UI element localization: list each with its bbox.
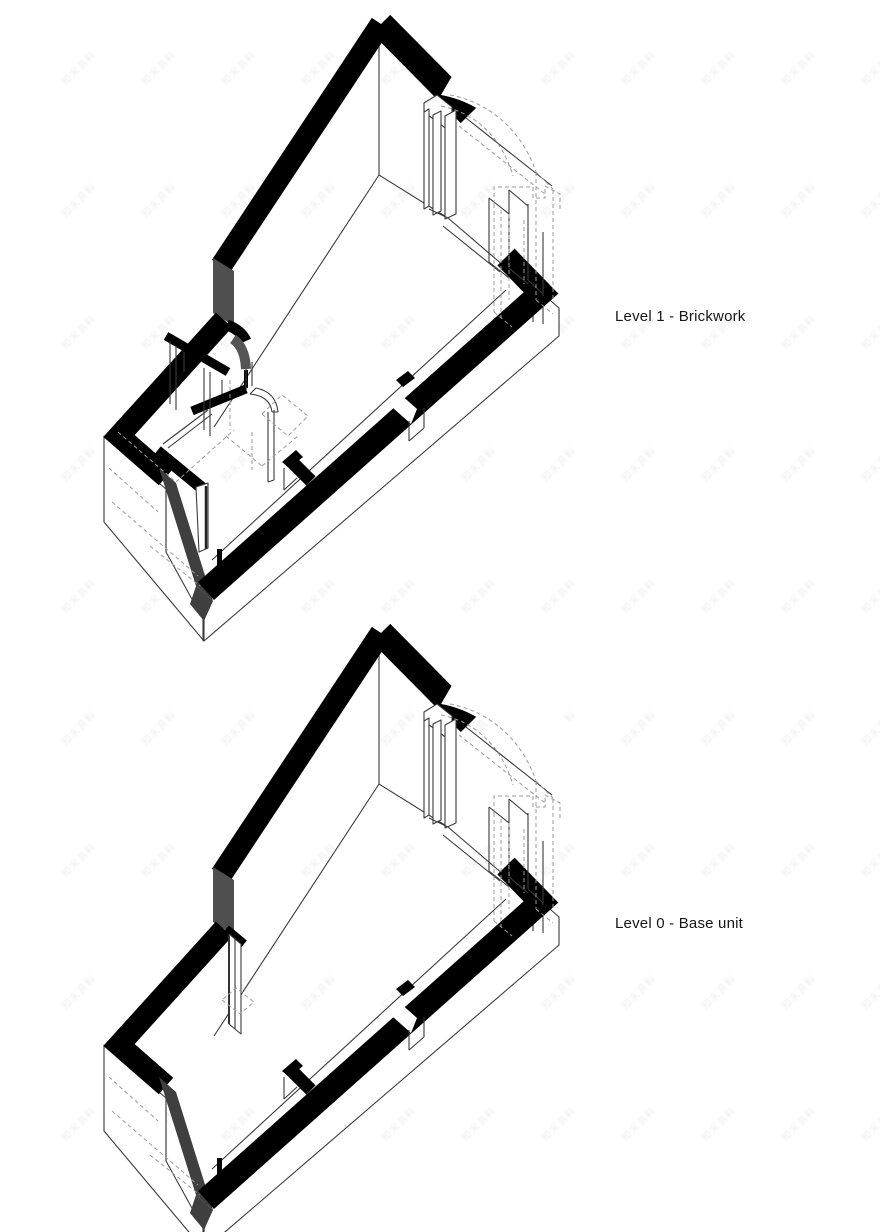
page: 知末资料知末资料知末资料知末资料知末资料知末资料知末资料知末资料知末资料知末资料… xyxy=(0,0,880,1232)
level-1-drawing xyxy=(104,24,575,641)
axonometric-drawings-canvas xyxy=(0,0,880,1232)
level-1-shell xyxy=(104,24,575,641)
level-0-label: Level 0 - Base unit xyxy=(615,915,743,932)
level-0-drawing xyxy=(104,633,575,1232)
level-1-label: Level 1 - Brickwork xyxy=(615,308,746,325)
level-0-shell xyxy=(104,633,575,1232)
